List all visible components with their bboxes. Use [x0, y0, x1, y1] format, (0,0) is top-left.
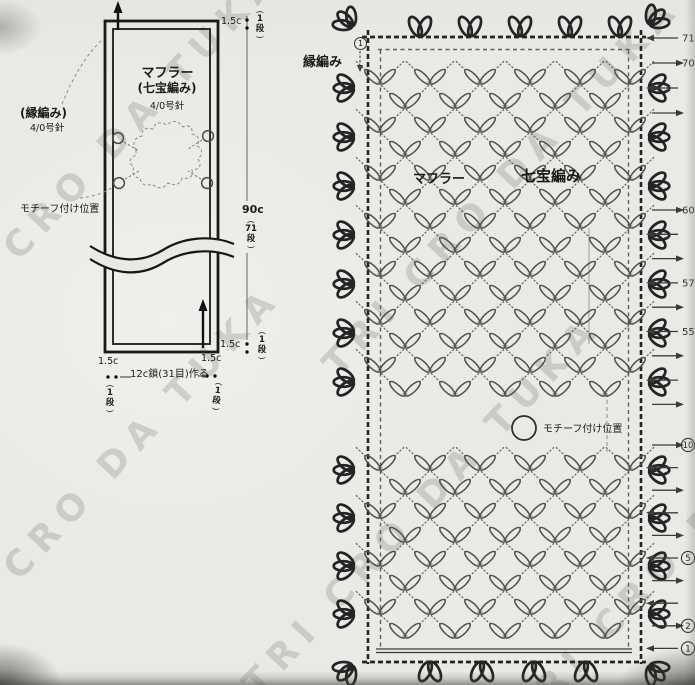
dim-bottom-left-col-width: 1.5c	[98, 356, 118, 367]
edging-label: (縁編み)	[20, 104, 67, 121]
svg-text:57: 57	[682, 278, 695, 289]
diagram-canvas: 717060575510521	[0, 0, 695, 685]
chart-edging-label: 縁編み	[303, 51, 342, 70]
dim-bottom-left-col-rows: ( 1 段 )	[102, 383, 118, 414]
schematic-hook-size: 4/0号針	[132, 98, 202, 112]
svg-text:71: 71	[682, 34, 695, 45]
dim-height: 90c	[242, 203, 264, 216]
cast-on-note: 12c鎖(31目)作る	[130, 365, 209, 380]
chart-title: マフラー	[413, 168, 465, 187]
dim-bottom-right-width: 1.5c	[220, 339, 240, 350]
dim-top-width: 1.5c	[221, 16, 241, 27]
schematic-subtitle: (七宝編み)	[122, 79, 212, 96]
svg-text:2: 2	[685, 622, 690, 632]
svg-text:10: 10	[683, 441, 694, 451]
svg-text:5: 5	[685, 554, 690, 564]
motif-position-note: モチーフ付け位置	[20, 200, 99, 215]
svg-text:1: 1	[685, 644, 690, 654]
chart-stitch-name: 七宝編み	[521, 165, 581, 186]
dim-bottom-right-col-width: 1.5c	[201, 353, 221, 364]
dim-height-rows: ( 71 段 )	[243, 219, 259, 250]
crochet-pattern-page: TRI CRO DA TUKA TRI CRO DA TUKA TRI CRO …	[0, 0, 695, 685]
edging-hook-size: 4/0号針	[30, 120, 64, 134]
dim-bottom-right-rows: ( 1 段 )	[254, 330, 270, 361]
svg-text:70: 70	[682, 59, 695, 70]
chart-motif-position-note: モチーフ付け位置	[543, 420, 622, 435]
svg-text:55: 55	[682, 327, 695, 338]
dim-top-rows: ( 1 段 )	[252, 9, 268, 40]
svg-text:60: 60	[682, 206, 695, 217]
chart-edging-row-marker: 1	[354, 37, 367, 50]
